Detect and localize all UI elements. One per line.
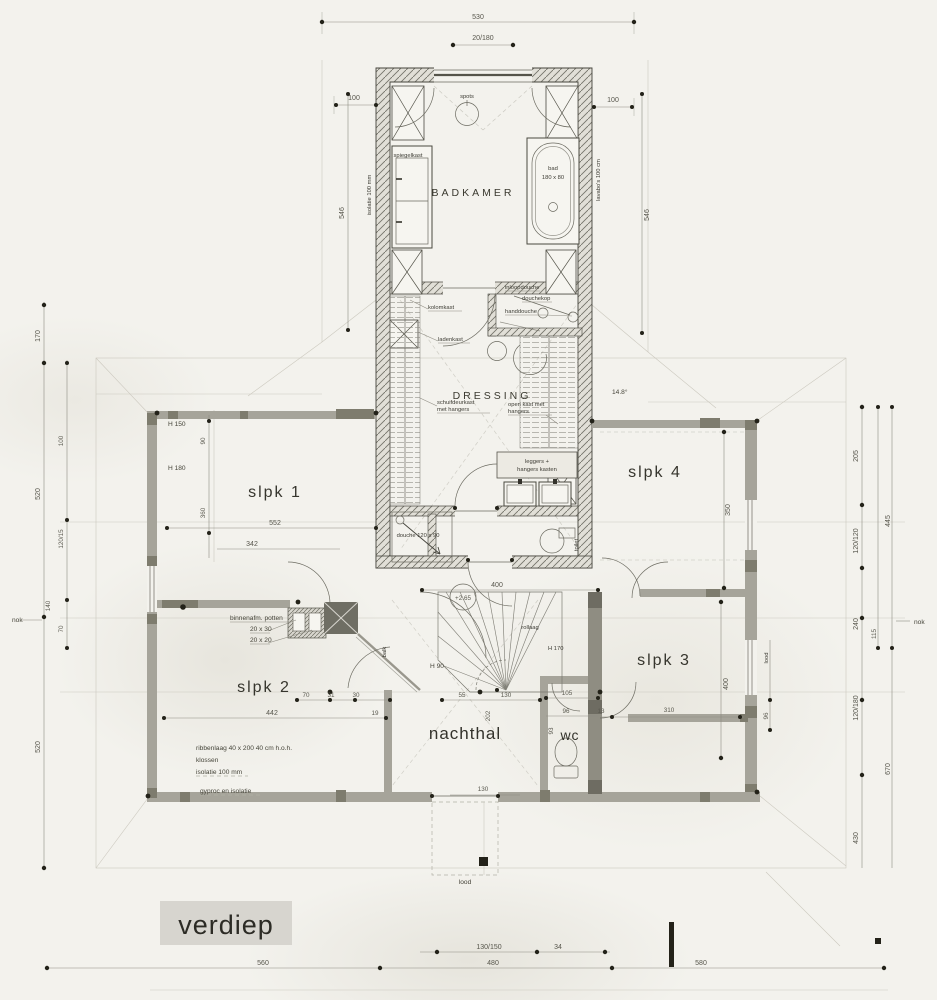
note-level: +2.65 [455,595,471,602]
dim-l-120-15: 120/15 [58,529,65,549]
floorplan-drawing: BADKAMER DRESSING slpk 1 slpk 2 slpk 3 s… [0,0,937,1000]
dim-r-670: 670 [885,763,892,775]
dim-r-96: 96 [763,712,770,720]
room-label-slpk3: slpk 3 [637,652,691,669]
door-slpk1 [288,562,330,604]
note-nok-left: nok [12,617,23,624]
dim-r-205: 205 [853,450,860,462]
dim-202: 202 [485,710,492,721]
label-bad-1: bad [548,166,558,172]
dim-70: 70 [302,692,310,699]
dim-130: 130 [501,692,512,699]
room-label-wc: wc [559,727,579,743]
dim-560: 560 [257,960,269,967]
dim-l-140: 140 [45,600,52,611]
dim-31: 31 [327,692,335,699]
label-ladenkast: ladenkast [438,337,463,343]
note-klossen: klossen [196,757,219,764]
dim-l-520b: 520 [35,741,42,753]
dim-window-top: 20/180 [472,35,494,42]
dim-stair-400: 400 [491,582,503,589]
stool [488,342,507,361]
room-label-badkamer: BADKAMER [432,187,515,199]
note-h150: H 150 [168,421,186,428]
floorplan-canvas: BADKAMER DRESSING slpk 1 slpk 2 slpk 3 s… [0,0,937,1000]
room-label-slpk2: slpk 2 [237,679,291,696]
dim-100-right: 100 [607,97,619,104]
dim-130-150: 130/150 [476,944,501,951]
plan-title: verdiep [160,901,292,945]
lood-protrusion [432,802,498,875]
label-kolomkast: kolomkast [428,305,454,311]
label-douche: douche 120 x 90 [397,533,440,539]
dim-480: 480 [487,960,499,967]
note-h90: H 90 [430,663,444,670]
door-wc [552,683,580,711]
plan-title-text: verdiep [178,910,274,940]
bathtub [527,138,579,244]
dim-l-100: 100 [58,435,65,446]
note-lood-bottom: lood [459,879,472,886]
dim-r-240: 240 [853,618,860,630]
label-spiegelkast: spiegelkast [393,153,422,159]
beam [358,634,420,690]
dim-34: 34 [554,944,562,951]
dim-546-left: 546 [339,207,346,219]
vanity [392,146,432,248]
label-isolatie-wall: isolatie 100 mm [367,175,373,216]
dim-r-120-120: 120/120 [853,528,860,553]
note-gyproc: gyproc en isolatie [200,788,252,795]
note-pot-2: 20 x 20 [250,637,272,644]
note-balk: balk [382,647,388,658]
label-schuifdeurkast-2: met hangers [437,407,469,413]
dim-l-70: 70 [58,625,65,633]
dim-r-445: 445 [885,515,892,527]
note-pot-1: 20 x 30 [250,626,272,633]
dim-580: 580 [695,960,707,967]
room-label-slpk1: slpk 1 [248,484,302,501]
label-lavabo-wall: lavabo's 100 cm [596,159,602,201]
label-handdouche: handdouche [505,309,537,315]
label-openkast-2: hangers [508,409,529,415]
door-slpk3 [600,682,636,718]
dim-r-430: 430 [853,832,860,844]
label-leggers-2: hangers kasten [517,467,557,473]
label-toilet: toilet [574,538,580,551]
dim-105: 105 [562,690,573,697]
label-spots: spots [460,94,474,100]
ensuite-toilet [540,528,575,553]
dimension-dots [42,20,894,970]
dim-slpk3-400: 400 [723,678,730,690]
label-douchekop: douchekop [522,296,550,302]
dim-l-520a: 520 [35,488,42,500]
dim-19: 19 [371,710,379,717]
dim-total-top: 530 [472,14,484,21]
note-rollaag: rollaag [521,625,538,631]
dim-100-left: 100 [348,95,360,102]
note-h180: H 180 [168,465,186,472]
label-bad-2: 180 x 80 [542,175,564,181]
dim-13: 13 [597,708,605,715]
door-ensuite [455,464,497,506]
label-leggers-1: leggers + [525,459,550,465]
dim-360: 360 [200,507,207,518]
room-label-slpk4: slpk 4 [628,464,682,481]
note-isolatie: isolatie 100 mm [196,769,243,776]
dim-r-120-180: 120/180 [853,695,860,720]
label-inloopdouche: inloopdouche [505,285,540,291]
wc-toilet [554,738,578,778]
dim-90: 90 [200,437,207,445]
note-binnenafm: binnenafm. potten [230,615,283,622]
dim-55: 55 [458,692,466,699]
dim-546-right: 546 [644,209,651,221]
dim-hall-130: 130 [478,786,489,793]
note-lood-right: lood [764,653,770,664]
dim-slpk4-350: 350 [725,504,732,516]
label-openkast-1: open kast met [508,402,545,408]
shelf-unit [497,452,577,478]
label-schuifdeurkast-1: schuifdeurkast [437,400,475,406]
room-label-nachthal: nachthal [429,724,501,743]
dim-93: 93 [548,727,555,735]
dim-96: 96 [562,708,570,715]
note-angle: 14.8° [612,388,628,396]
dim-30: 30 [352,692,360,699]
chimney [288,602,358,638]
dim-r-115: 115 [871,628,878,639]
note-h170: H 170 [548,646,563,652]
dim-slpk1-342: 342 [246,541,258,548]
washbasins [504,479,571,506]
note-nok-right: nok [914,619,925,626]
note-ribbenlaag: ribbenlaag 40 x 200 40 cm h.o.h. [196,745,292,752]
dim-310: 310 [664,707,675,714]
dim-slpk2-442: 442 [266,710,278,717]
dim-slpk1-552: 552 [269,520,281,527]
dim-l-170: 170 [35,330,42,342]
door-slpk4-a [602,558,640,596]
